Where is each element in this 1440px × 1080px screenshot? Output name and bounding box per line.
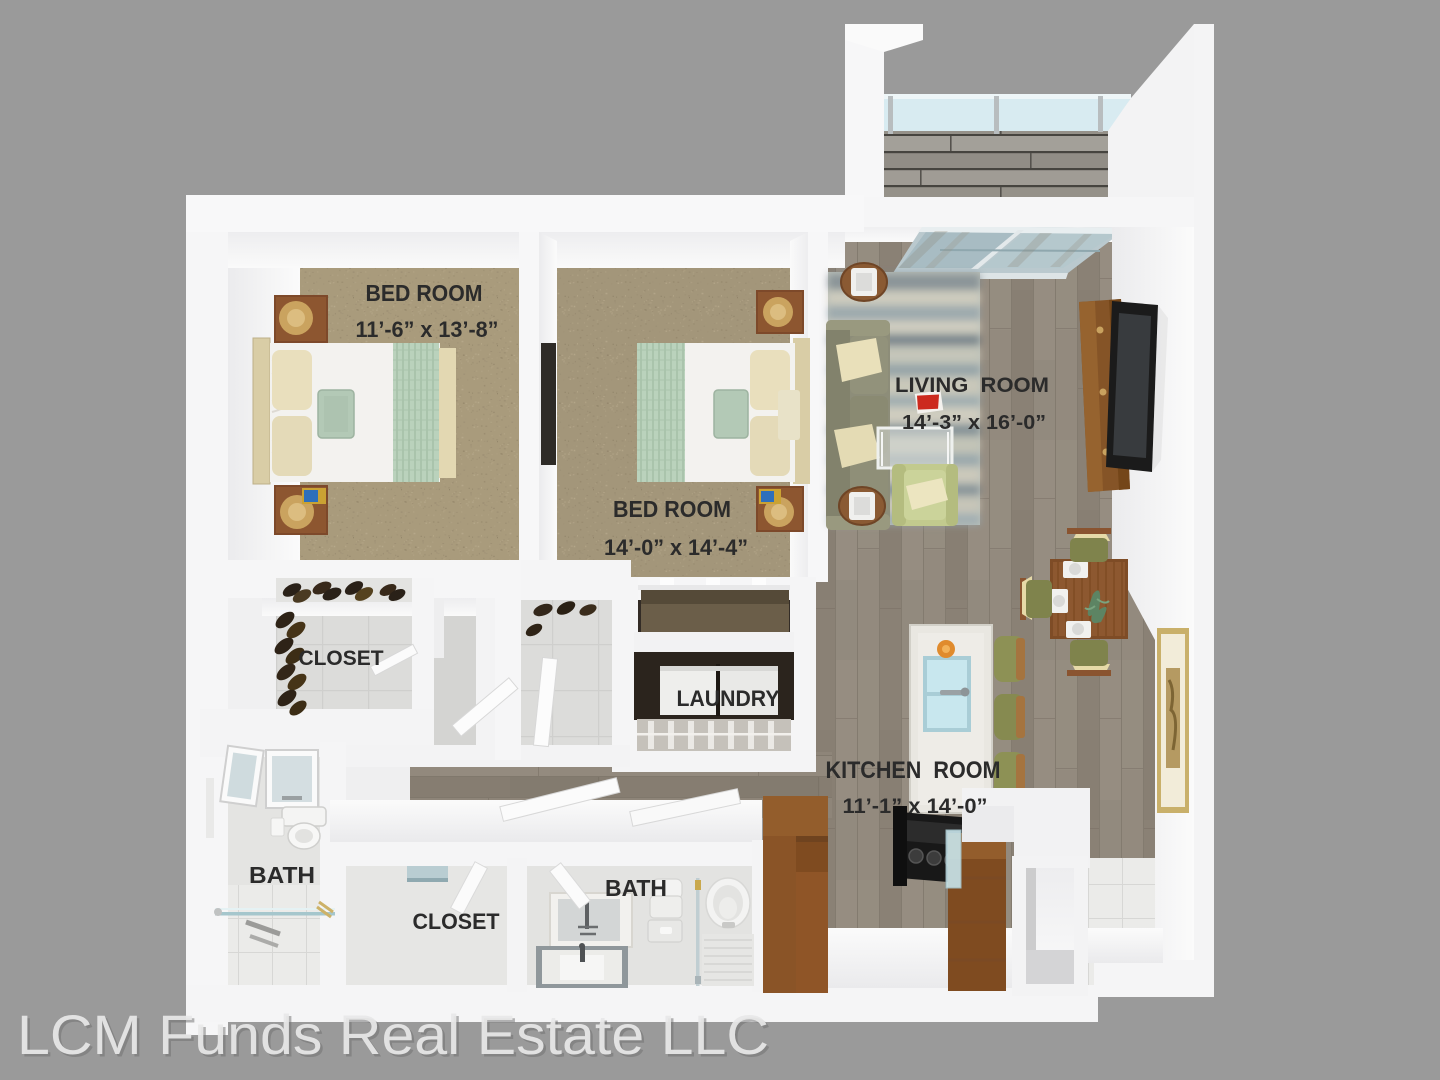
svg-text:CLOSET: CLOSET (299, 647, 384, 670)
svg-text:14’-3” x 16’-0”: 14’-3” x 16’-0” (902, 412, 1046, 434)
svg-text:14’-0” x 14’-4”: 14’-0” x 14’-4” (604, 535, 748, 560)
svg-text:CLOSET: CLOSET (413, 909, 501, 934)
svg-text:LAUNDRY: LAUNDRY (677, 686, 780, 711)
svg-text:KITCHEN ROOM: KITCHEN ROOM (826, 757, 1001, 784)
svg-text:BATH: BATH (605, 875, 667, 901)
svg-text:BATH: BATH (249, 862, 315, 888)
svg-text:BED ROOM: BED ROOM (366, 280, 483, 306)
svg-text:LIVING ROOM: LIVING ROOM (895, 374, 1049, 397)
svg-text:11’-6” x 13’-8”: 11’-6” x 13’-8” (356, 317, 499, 342)
svg-text:11’-1” x 14’-0”: 11’-1” x 14’-0” (843, 795, 988, 818)
svg-text:LCM Funds Real Estate LLC: LCM Funds Real Estate LLC (17, 1003, 769, 1066)
svg-text:BED ROOM: BED ROOM (613, 496, 731, 522)
